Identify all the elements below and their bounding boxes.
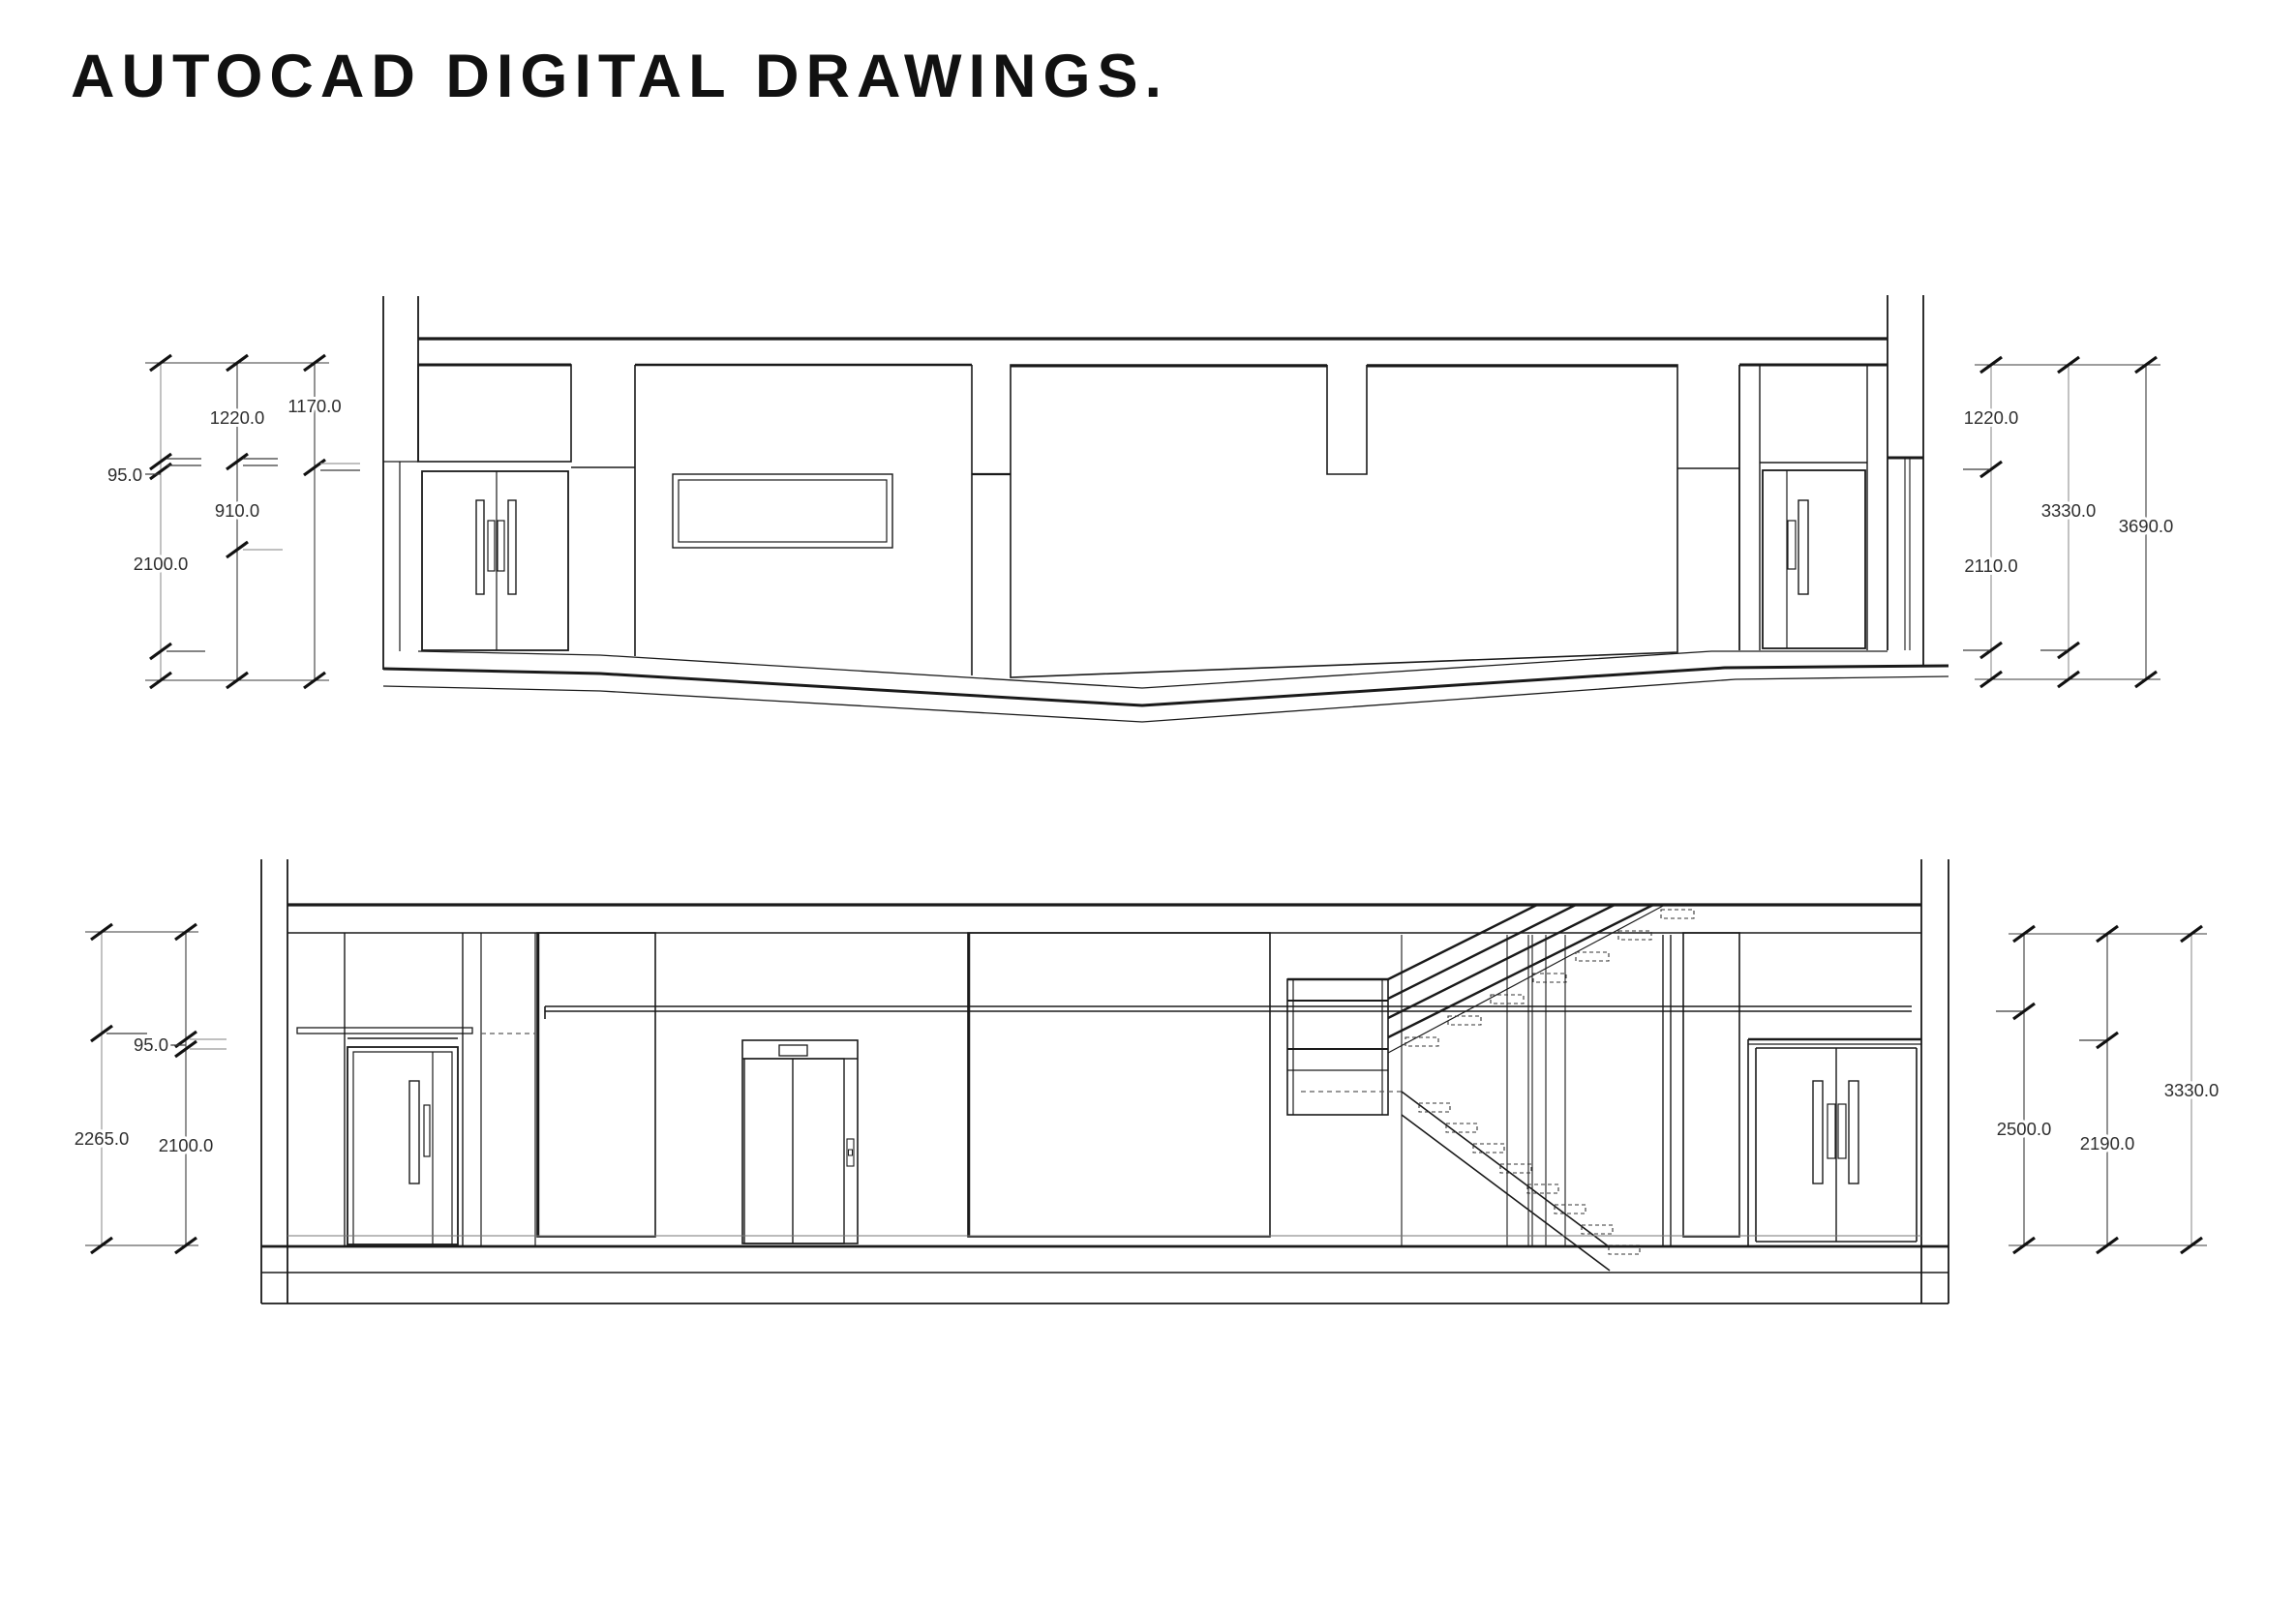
lower-left-door (347, 1047, 458, 1244)
elevator-header-plate (779, 1045, 807, 1056)
door-handle-bar (1788, 521, 1796, 569)
stair-balustrade (1287, 979, 1402, 1115)
dim-label: 95.0 (134, 1034, 168, 1055)
door-handle-bar (1838, 1104, 1846, 1158)
dim-label: 3330.0 (2041, 500, 2097, 521)
stair-lower-flight (1402, 1092, 1640, 1271)
lower-section-drawing: 95.0 2265.0 2100.0 2500.0 2190.0 3330.0 (75, 859, 2220, 1303)
dim-label: 95.0 (107, 464, 142, 485)
brick-pier-c (1683, 933, 1739, 1237)
upper-brick-wall (1011, 364, 1677, 677)
elevator-call-button (849, 1150, 853, 1155)
stair-upper-flight (1388, 905, 1694, 1053)
dim-label: 2110.0 (1964, 555, 2017, 576)
door-handle-bar (409, 1081, 419, 1184)
upper-right-door (1763, 470, 1865, 648)
door-handle-bar (476, 500, 484, 594)
lower-wall-strip (481, 933, 535, 1246)
elevator-doors (744, 1059, 844, 1243)
elevator (742, 1040, 858, 1243)
lower-left-door-bay (297, 933, 472, 1246)
dim-label: 1220.0 (210, 407, 265, 428)
lower-dims-left: 95.0 2265.0 2100.0 (75, 924, 227, 1253)
door-canopy (297, 1028, 472, 1034)
door-handle-bar (508, 500, 516, 594)
window-opening (673, 474, 892, 548)
dim-label: 3690.0 (2119, 516, 2174, 536)
window-opening-inner (679, 480, 887, 542)
brick-notch (1327, 364, 1367, 474)
dim-label: 2265.0 (75, 1128, 130, 1149)
lower-left-wall (261, 859, 287, 1303)
upper-right-wall (1888, 295, 1923, 667)
upper-left-wall (383, 296, 418, 670)
upper-right-door-bay (1739, 365, 1888, 650)
upper-dims-right: 1220.0 2110.0 3330.0 3690.0 (1963, 357, 2173, 687)
dim-label: 2100.0 (159, 1135, 214, 1155)
upper-left-double-door (422, 471, 568, 650)
brick-pier-a (537, 933, 655, 1237)
stair-posts (1402, 935, 1671, 1246)
lower-floor-slab (261, 1236, 1949, 1303)
door-handle-bar (498, 521, 504, 571)
door-handle-bar (1798, 500, 1808, 594)
cad-drawing-canvas: AUTOCAD DIGITAL DRAWINGS. (0, 0, 2296, 1618)
brick-wall-b (968, 933, 1270, 1237)
upper-dims-left: 95.0 2100.0 1220.0 910.0 1170.0 (107, 355, 360, 688)
dim-label: 2100.0 (134, 554, 189, 574)
dim-label: 3330.0 (2164, 1080, 2220, 1100)
upper-left-transom-panel (418, 365, 571, 462)
lower-right-wall (1921, 859, 1949, 1303)
dim-label: 910.0 (215, 500, 259, 521)
dim-label: 1170.0 (287, 396, 341, 416)
upper-section-drawing: 95.0 2100.0 1220.0 910.0 1170.0 1220.0 2… (107, 295, 2173, 722)
door-handle-bar (1813, 1081, 1823, 1184)
handrail-line (545, 1006, 1912, 1019)
upper-wall-pier (635, 365, 972, 675)
door-handle-bar (1828, 1104, 1835, 1158)
lower-ceiling-slab (287, 905, 1921, 933)
door-handle-bar (488, 521, 495, 571)
dim-label: 2190.0 (2080, 1133, 2135, 1154)
sheet-title: AUTOCAD DIGITAL DRAWINGS. (71, 43, 1168, 110)
lower-right-door-bay (1748, 1039, 1921, 1246)
dim-label: 1220.0 (1964, 407, 2019, 428)
door-handle-bar (1849, 1081, 1858, 1184)
cad-sheet: AUTOCAD DIGITAL DRAWINGS. (0, 0, 2296, 1618)
head-datum-lines (571, 467, 1739, 468)
door-handle-bar (424, 1105, 430, 1156)
upper-floor-lines (383, 651, 1949, 722)
lower-dims-right: 2500.0 2190.0 3330.0 (1996, 926, 2219, 1253)
dim-label: 2500.0 (1997, 1119, 2052, 1139)
